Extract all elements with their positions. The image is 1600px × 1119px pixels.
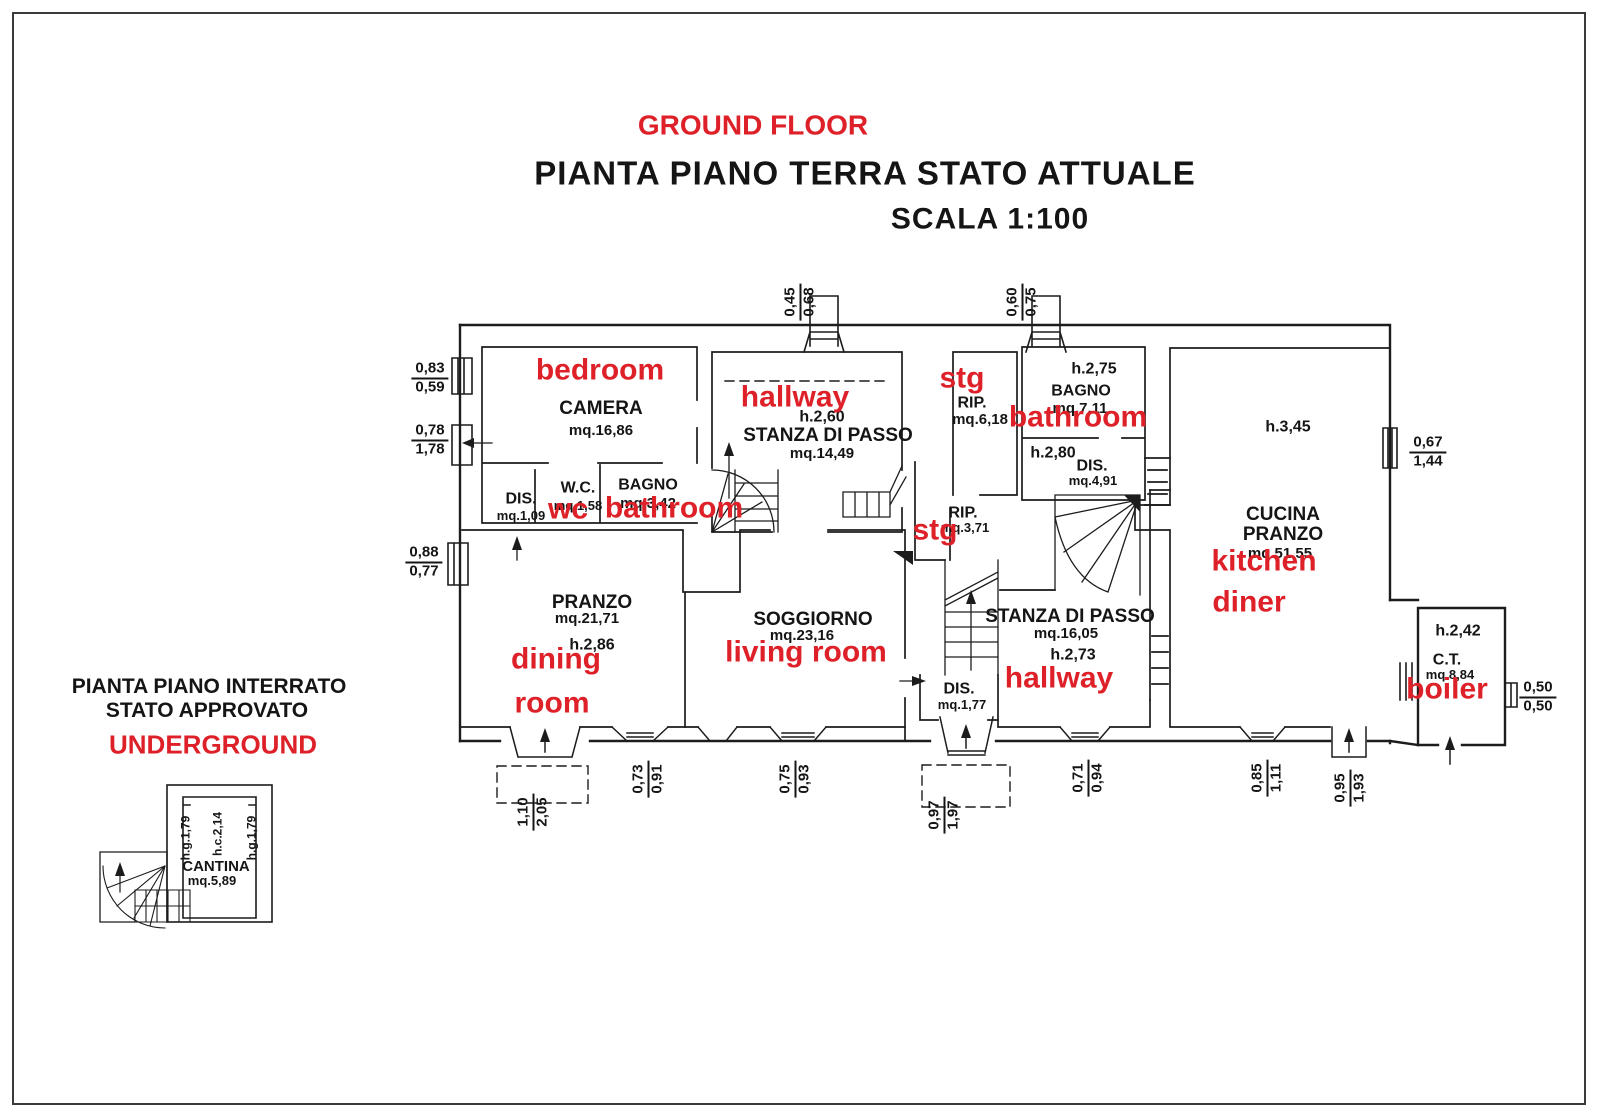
annotation-dining-line2: room [515,687,590,719]
dim-porch-2: 0,971,97 [927,796,962,833]
annotation-dining-line1: dining [511,643,601,675]
dim-left-2: 0,781,78 [411,423,448,458]
room-cucina-label2: PRANZO [1243,525,1323,545]
underground-title-line1: PIANTA PIANO INTERRATO [72,676,347,698]
room-pranzo-area: mq.21,71 [555,611,619,627]
room-stanza2-area: mq.16,05 [1034,626,1098,642]
annotation-stg-2: stg [913,514,958,546]
cantina-height-right: h.g.1,79 [246,816,259,861]
room-cucina-height: h.3,45 [1265,420,1310,437]
room-bagno2-label: BAGNO [1051,384,1111,401]
floor-plan-page: GROUND FLOOR PIANTA PIANO TERRA STATO AT… [0,0,1600,1119]
annotation-stg-1: stg [940,362,985,394]
annotation-bedroom: bedroom [536,354,664,386]
annotation-living-room: living room [725,636,887,668]
cantina-area: mq.5,89 [188,874,236,888]
annotation-bathroom-1: bathroom [605,492,743,524]
annotation-bathroom-2: bathroom [1009,401,1147,433]
dim-right-2: 0,500,50 [1519,680,1556,715]
room-rip1-area: mq.6,18 [952,412,1008,428]
dim-bottom-3: 0,710,94 [1071,759,1106,796]
room-camera-area: mq.16,86 [569,423,633,439]
ground-floor-annotation: GROUND FLOOR [638,110,868,139]
annotation-hallway-2: hallway [1005,662,1113,694]
annotation-kitchen-line1: kitchen [1211,545,1316,577]
dim-left-3: 0,880,77 [405,545,442,580]
dim-bottom-1: 0,730,91 [631,760,666,797]
cantina-height-left: h.g.1,79 [180,816,193,861]
room-dis1-area: mq.1,09 [497,509,545,523]
dim-bottom-5: 0,951,93 [1333,769,1368,806]
annotation-wc: wc [548,493,588,525]
dim-top-2: 0,600,75 [1005,283,1040,320]
room-ct-height: h.2,42 [1435,624,1480,641]
room-dis3-area: mq.1,77 [938,698,986,712]
room-dis3-label: DIS. [943,682,974,699]
room-bagno2-height: h.2,75 [1071,362,1116,379]
underground-annotation: UNDERGROUND [109,731,317,758]
page-title: PIANTA PIANO TERRA STATO ATTUALE [534,157,1195,192]
room-camera-label: CAMERA [559,399,642,419]
dim-bottom-4: 0,851,11 [1250,759,1285,796]
annotation-hallway-1: hallway [741,381,849,413]
room-cucina-label1: CUCINA [1246,505,1320,525]
cantina-height-center: h.c.2,14 [212,812,225,856]
dim-top-1: 0,450,68 [783,283,818,320]
room-dis1-label: DIS. [505,492,536,509]
dim-left-1: 0,830,59 [411,361,448,396]
dim-bottom-2: 0,750,93 [778,760,813,797]
dim-right-1: 0,671,44 [1409,435,1446,470]
annotation-kitchen-line2: diner [1212,586,1285,618]
room-stanza2-label: STANZA DI PASSO [985,607,1155,627]
room-rip1-label: RIP. [957,396,986,413]
annotation-boiler: boiler [1406,673,1488,705]
room-stanza1-area: mq.14,49 [790,446,854,462]
room-stanza1-label: STANZA DI PASSO [743,426,913,446]
underground-title-line2: STATO APPROVATO [106,700,308,722]
room-dis2-height: h.2,80 [1030,446,1075,463]
dim-porch-1: 1,102,05 [516,793,551,830]
scale-label: SCALA 1:100 [891,203,1089,235]
room-dis2-area: mq.4,91 [1069,474,1117,488]
